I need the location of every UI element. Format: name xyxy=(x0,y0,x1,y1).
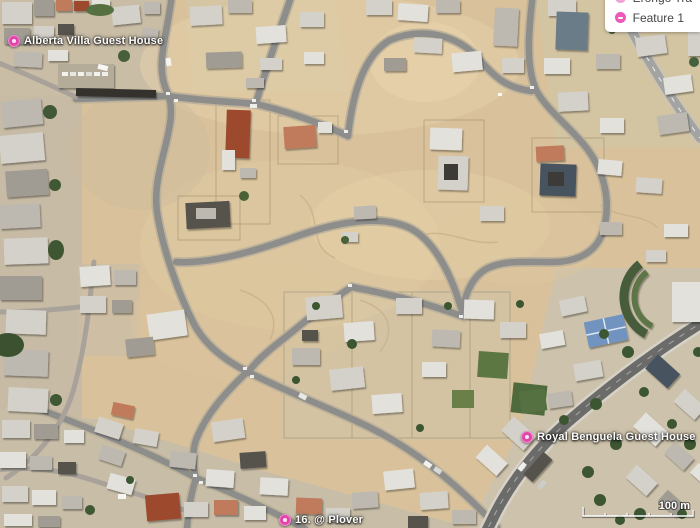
map-viewport[interactable]: Alberta Villa Guest House Royal Benguela… xyxy=(0,0,700,528)
layer-label: Feature 1 xyxy=(633,11,684,25)
layer-swatch-icon xyxy=(615,12,626,23)
satellite-imagery xyxy=(0,0,700,528)
place-pin-icon[interactable] xyxy=(8,35,20,47)
swatch-dash xyxy=(618,17,623,19)
scale-bar: 100 m xyxy=(580,497,698,528)
layer-item-erongo[interactable]: Erongo Tra xyxy=(615,0,692,5)
pin-dot xyxy=(525,435,529,439)
layer-label: Erongo Tra xyxy=(633,0,692,5)
place-pin-icon[interactable] xyxy=(521,431,533,443)
place-pin-icon[interactable] xyxy=(279,514,291,526)
layer-swatch-icon xyxy=(615,0,626,3)
layer-item-feature-1[interactable]: Feature 1 xyxy=(615,10,692,25)
place-label: 16. @ Plover xyxy=(295,514,363,526)
scale-label: 100 m xyxy=(659,500,690,512)
place-marker-royal-benguela[interactable]: Royal Benguela Guest House xyxy=(521,431,696,443)
place-marker-alberta-villa[interactable]: Alberta Villa Guest House xyxy=(8,35,163,47)
pin-dot xyxy=(283,518,287,522)
pin-dot xyxy=(12,39,16,43)
layers-panel: Erongo Tra Feature 1 xyxy=(605,0,700,32)
place-label: Alberta Villa Guest House xyxy=(24,35,163,47)
scale-ruler: 100 m xyxy=(580,497,698,523)
place-label: Royal Benguela Guest House xyxy=(537,431,696,443)
place-marker-16-at-plover[interactable]: 16. @ Plover xyxy=(279,514,363,526)
